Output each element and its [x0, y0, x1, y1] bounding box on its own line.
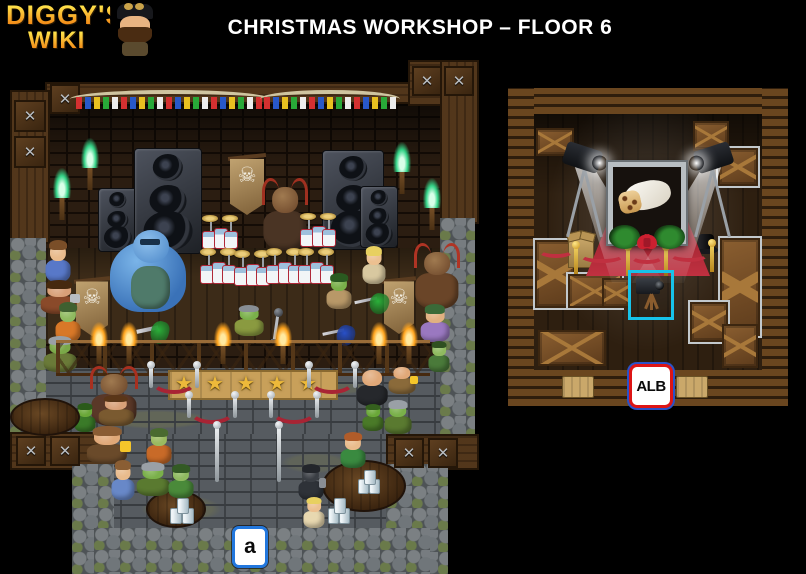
wooden-table: [10, 398, 80, 436]
velvet-rope: [186, 396, 238, 426]
logo-line1: DIGGY'S: [6, 2, 110, 29]
christmas-wreath: [654, 225, 685, 249]
metal-cross-brace-icon: ✕: [14, 100, 46, 132]
metal-cross-brace-icon: ✕: [14, 136, 46, 168]
fence-torch: [214, 322, 232, 364]
minotaur-character: [414, 243, 460, 309]
gold-star: ★: [237, 373, 257, 393]
fence-torch: [370, 322, 388, 364]
christmas-wreath: [609, 225, 640, 249]
blue-troll: [110, 230, 186, 312]
dark-knight-character: [298, 466, 324, 500]
speaker-stack-small: [360, 186, 398, 248]
elf-character: [111, 462, 135, 500]
concert-hall-entities: ☠☠☠★★★★★✕✕✕✕✕✕✕✕✕: [10, 60, 475, 574]
zombie-character: [146, 430, 172, 464]
logo-line2: WIKI: [28, 29, 110, 53]
page: DIGGY'S WIKI CHRISTMAS WORKSHOP – FLOOR …: [0, 0, 806, 574]
orc-viking-character: [384, 402, 412, 434]
wooden-crate: [538, 330, 606, 366]
border-tile: [562, 376, 594, 398]
drum-kit: [266, 248, 302, 284]
rope-post: [213, 426, 221, 482]
elf-character: [45, 242, 71, 282]
flag-garland: [70, 90, 270, 114]
green-torch: [80, 138, 100, 190]
camera-lens-icon: [655, 281, 664, 290]
drum-kit: [300, 213, 336, 247]
metal-cross-brace-icon: ✕: [412, 66, 442, 96]
orc-character: [362, 405, 384, 431]
rope-post: [275, 426, 283, 482]
skull-banner: ☠: [230, 155, 264, 215]
gold-star: ★: [268, 373, 288, 393]
camera-highlight-box[interactable]: [628, 270, 674, 320]
spotlight: [688, 146, 736, 241]
fence-torch: [90, 322, 108, 364]
orc-viking-character: [136, 464, 170, 496]
zombie-character: [168, 466, 194, 498]
fence-torch: [400, 322, 418, 364]
map-marker-a[interactable]: a: [232, 526, 268, 568]
velvet-rope: [306, 366, 358, 396]
carpet-rope: [536, 242, 576, 254]
marker-a-label: a: [244, 535, 256, 559]
dwarf-beer-character: [86, 428, 128, 464]
metal-cross-brace-icon: ✕: [50, 436, 80, 466]
big-guy-beer-character: [388, 366, 416, 394]
flag-garland: [260, 90, 400, 114]
purple-elf-character: [420, 306, 450, 342]
concert-hall-map: ☠☠☠★★★★★✕✕✕✕✕✕✕✕✕ a: [10, 60, 475, 574]
strongman-character: [356, 368, 388, 406]
spotlight: [560, 146, 608, 241]
drum-kit: [234, 250, 270, 286]
border-tile: [676, 376, 708, 398]
carpet-rope: [628, 248, 666, 260]
diggys-wiki-logo[interactable]: DIGGY'S WIKI: [6, 2, 166, 58]
elf-character: [340, 434, 366, 468]
dwarf-warrior-character: [98, 396, 134, 426]
marker-alb-label: ALB: [636, 378, 665, 395]
wooden-crate: [722, 324, 758, 368]
blonde-elf-character: [303, 498, 325, 528]
velvet-rope: [148, 366, 200, 396]
blonde-elf-character: [362, 248, 386, 284]
drum-kit: [200, 248, 236, 284]
gold-star: ★: [206, 373, 226, 393]
metal-cross-brace-icon: ✕: [16, 436, 46, 466]
metal-cross-brace-icon: ✕: [428, 438, 458, 468]
map-marker-alb[interactable]: ALB: [629, 364, 673, 408]
orc-viking-character: [234, 306, 264, 336]
zombie-character: [428, 342, 450, 372]
metal-cross-brace-icon: ✕: [394, 438, 424, 468]
can-pyramid: [328, 498, 350, 524]
page-title: CHRISTMAS WORKSHOP – FLOOR 6: [180, 16, 660, 40]
fence-torch: [274, 322, 292, 364]
can-pyramid: [170, 498, 194, 524]
diggy-character-icon: [110, 2, 160, 58]
green-torch: [422, 178, 442, 230]
orc-character: [326, 275, 352, 309]
photo-room-map: ALB: [508, 88, 788, 406]
tripod-leg: [650, 294, 653, 310]
can-pyramid: [358, 470, 380, 494]
stollen-picture-frame: [608, 162, 686, 244]
red-bow-knot: [644, 238, 651, 247]
logo-text: DIGGY'S WIKI: [6, 2, 110, 58]
drum-kit: [202, 215, 238, 249]
green-torch: [52, 168, 72, 220]
fence-torch: [120, 322, 138, 364]
metal-cross-brace-icon: ✕: [444, 66, 474, 96]
